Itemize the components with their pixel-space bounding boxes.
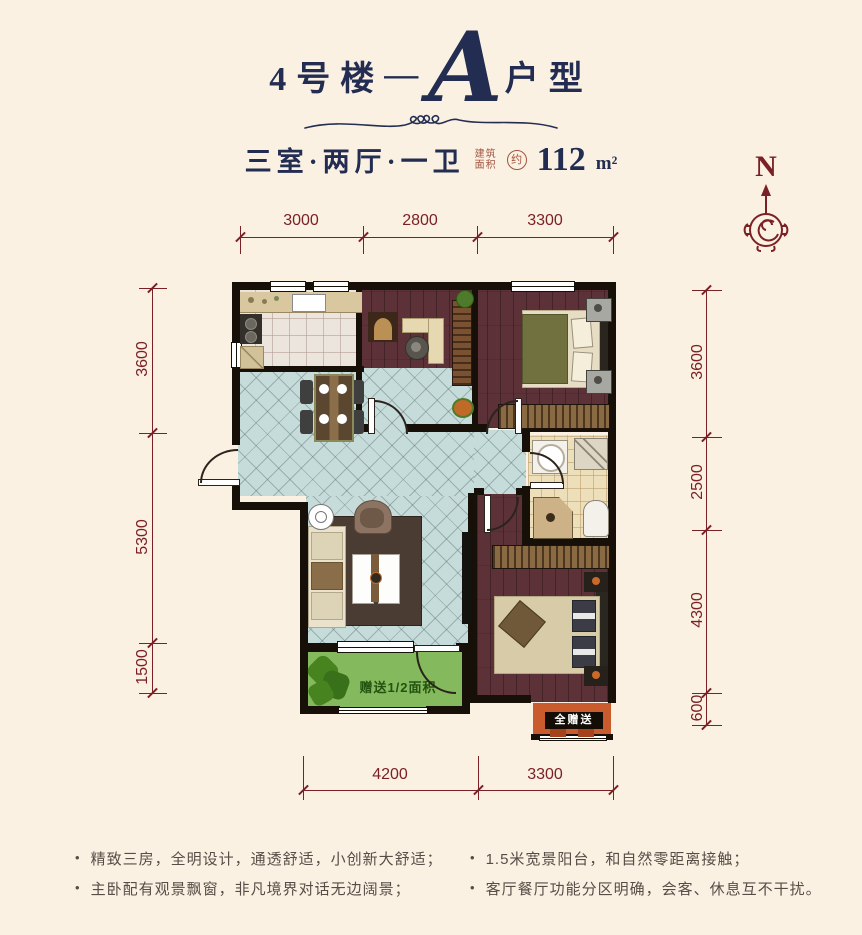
bedroom2-blanket [522,314,568,384]
bay-seat [578,729,594,737]
bedroom3-wardrobe [492,545,610,569]
kitchen-item [248,297,254,303]
office-chair-center [411,342,421,352]
dim-tick [363,226,364,254]
floorplan-page: 4号楼 — A 户型 三室·两厅·一卫 建筑 面积 约 112 m² N [0,0,862,935]
dim-top-2: 2800 [390,212,450,230]
dim-tick [478,756,479,800]
dining-plate [319,384,329,394]
approx-circle: 约 [507,150,527,170]
nightstand-lamp [594,304,602,312]
tv [462,532,471,624]
dim-left-1: 3600 [134,324,152,394]
dim-tick [613,226,614,254]
bullet-icon: • [75,848,81,869]
dim-line-bottom [303,790,613,791]
wall-balcony-south-b [426,706,470,714]
wall-step [232,502,308,510]
kitchen-item [274,296,279,301]
toilet [583,500,609,537]
plant [452,398,474,418]
dim-right-4: 600 [689,673,707,743]
wall-bedroom3-south-a [468,695,531,703]
compass-icon [734,184,798,254]
layout-text: 三室·两厅·一卫 [245,140,465,179]
dining-plate [337,384,347,394]
wall-left-living [300,502,308,714]
dim-tick [613,756,614,800]
bay-seat [550,729,566,737]
dim-top-1: 3000 [271,212,331,230]
living-sliding-window [337,641,414,653]
wall-balcony-south-a [300,706,340,714]
corridor-floor [474,430,526,494]
dim-line-left [152,288,153,693]
dim-right-3: 4300 [689,575,707,645]
dim-right-1: 3600 [689,327,707,397]
stove-burner [245,331,257,343]
feature-item: • 主卧配有观景飘窗，非凡境界对话无边阔景； [75,878,411,899]
bullet-icon: • [75,878,81,899]
shower [574,438,608,470]
dim-tick [240,226,241,254]
area-unit: m² [596,153,618,175]
nightstand-lamp [594,376,602,384]
feature-text: 客厅餐厅功能分区明确，会客、休息互不干扰。 [486,878,822,899]
kitchen-sink [292,294,326,312]
balcony-door-leaf [414,645,460,652]
feature-text: 1.5米宽景阳台，和自然零距离接触； [486,848,750,869]
wall-living-south-a [300,643,337,652]
bullet-icon: • [470,848,476,869]
bullet-icon: • [470,878,476,899]
building-number: 4号楼 [269,51,384,100]
title-dash: — [384,56,428,94]
kitchen-window-1 [270,281,306,292]
area-value: 112 [537,141,586,179]
area-label: 建筑 面积 [475,149,497,171]
wall-segment [516,488,528,495]
wall-bath-south [522,538,616,545]
armchair-seat [360,508,384,528]
dining-chair [300,410,313,434]
dim-left-2: 5300 [134,502,152,572]
dim-tick [477,226,478,254]
unit-suffix: 户型 [505,51,593,100]
dim-bottom-1: 4200 [360,766,420,784]
dim-left-3: 1500 [134,632,152,702]
nightstand-lamp [592,577,600,585]
wall-bedroom3-south-b [608,695,616,703]
table-decor [370,572,382,584]
wall-bath-west-upper [522,430,530,452]
study-cabinet-arch [374,318,392,340]
sofa-cushion [311,562,343,590]
feature-item: • 精致三房，全明设计，通透舒适，小创新大舒适； [75,848,443,869]
feature-text: 主卧配有观景飘窗，非凡境界对话无边阔景； [91,878,411,899]
unit-letter: A [428,28,502,108]
desk-return [428,318,444,364]
wall-right [608,282,616,703]
dim-top-3: 3300 [515,212,575,230]
dim-bottom-2: 3300 [515,766,575,784]
feature-item: • 客厅餐厅功能分区明确，会客、休息互不干扰。 [470,878,822,899]
kitchen-cabinet [240,346,264,369]
dim-line-top [240,237,614,238]
compass-north-label: N [748,150,784,184]
balcony-window [338,707,428,714]
dining-chair [300,380,313,404]
area-label-bottom: 面积 [475,160,497,171]
stove-burner [245,318,257,330]
floor-lamp-center [315,511,327,523]
bookshelf [452,300,472,386]
dining-plate [319,414,329,424]
kitchen-item [262,299,267,304]
sofa-cushion [311,592,343,620]
sofa-cushion [311,532,343,560]
pillow [572,600,596,632]
wall-balcony-east [462,643,470,714]
entry-door-arc [200,449,238,483]
kitchen-window-2 [313,281,349,292]
feature-text: 精致三房，全明设计，通透舒适，小创新大舒适； [91,848,443,869]
area-label-top: 建筑 [475,149,497,160]
dining-plate [337,414,347,424]
flourish-divider [301,110,561,136]
pillow [572,636,596,668]
feature-item: • 1.5米宽景阳台，和自然零距离接触； [470,848,749,869]
wall-segment [406,424,487,432]
page-title: 4号楼 — A 户型 [0,30,862,120]
shower-drain [546,513,555,522]
dim-right-2: 2500 [689,447,707,517]
bay-gift-label: 全赠送 [545,712,603,729]
dim-tick [303,756,304,800]
nightstand-lamp [592,671,600,679]
subtitle-row: 三室·两厅·一卫 建筑 面积 约 112 m² [0,140,862,179]
bedroom2-window [511,281,575,292]
plant [456,290,474,308]
